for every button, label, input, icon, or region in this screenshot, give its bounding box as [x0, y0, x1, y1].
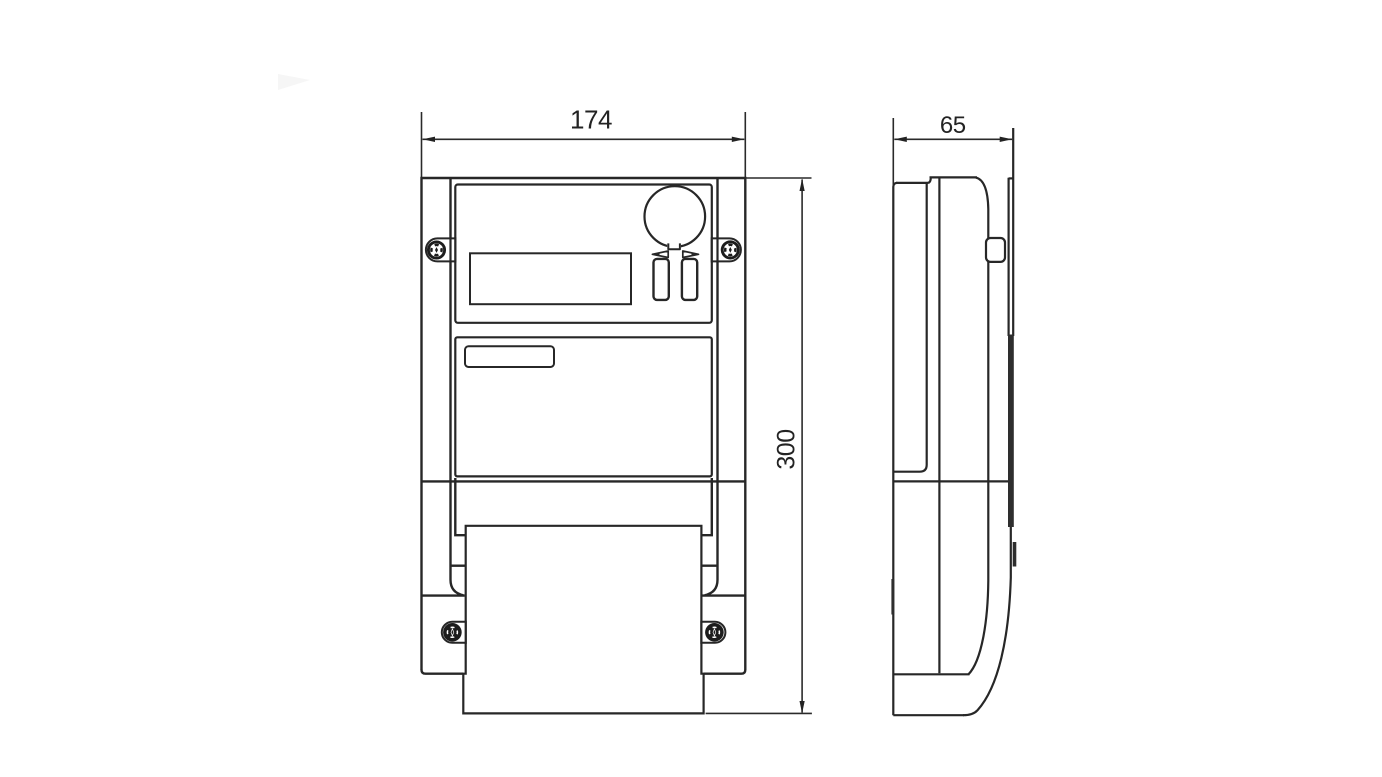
svg-text:174: 174: [570, 105, 612, 135]
svg-text:65: 65: [940, 112, 966, 139]
svg-text:300: 300: [773, 429, 801, 469]
